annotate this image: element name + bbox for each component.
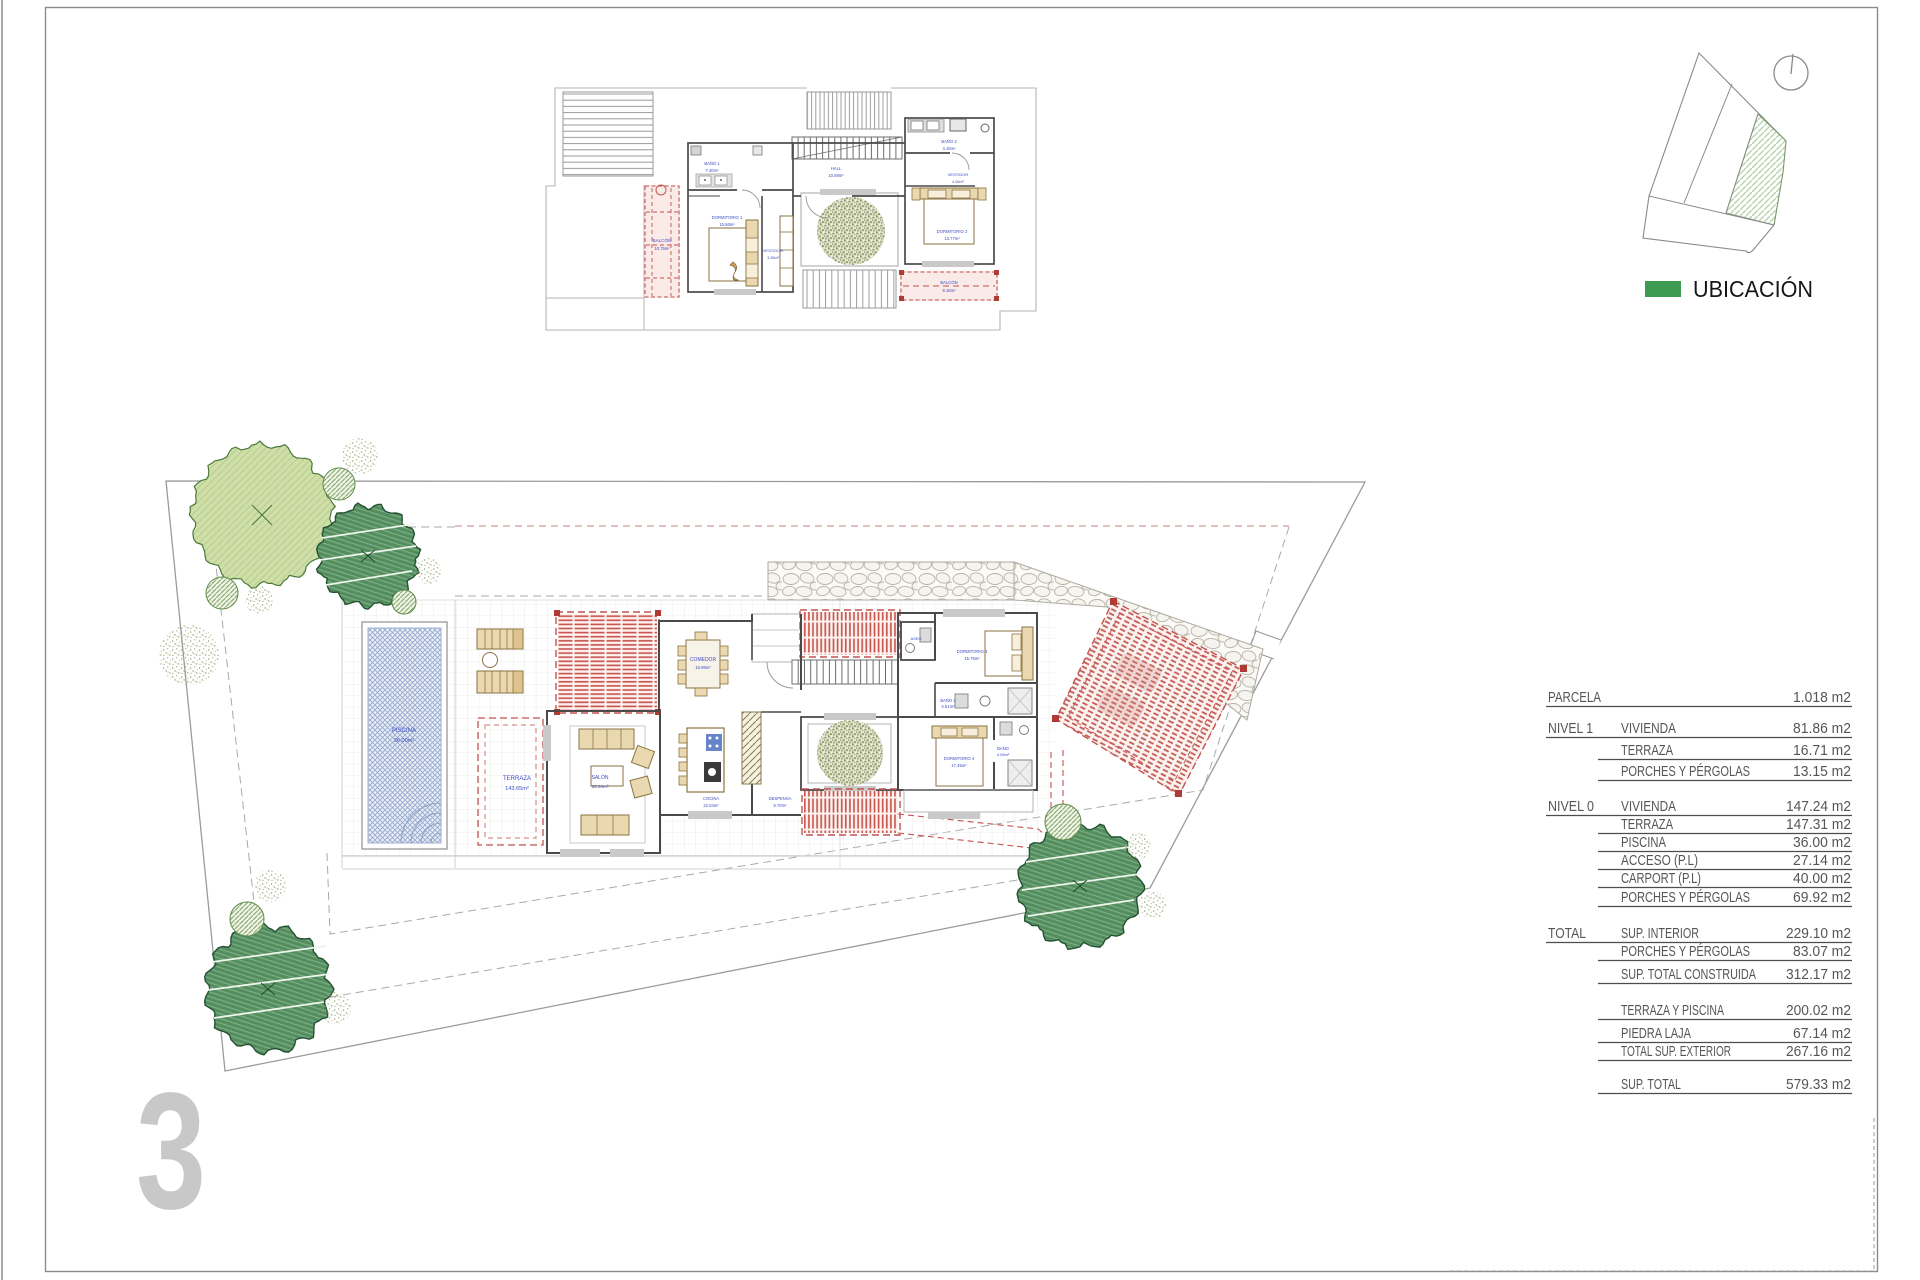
svg-text:SUP. TOTAL CONSTRUIDA: SUP. TOTAL CONSTRUIDA xyxy=(1621,967,1756,983)
svg-text:143.65m²: 143.65m² xyxy=(505,786,529,792)
svg-text:81.86 m2: 81.86 m2 xyxy=(1793,721,1851,737)
svg-text:1.018 m2: 1.018 m2 xyxy=(1793,690,1851,706)
svg-text:VESTIDOR: VESTIDOR xyxy=(948,172,969,177)
svg-text:COMEDOR: COMEDOR xyxy=(690,657,717,663)
svg-text:COCINA: COCINA xyxy=(703,796,719,801)
svg-text:PISCINA: PISCINA xyxy=(392,728,416,734)
svg-text:CARPORT (P.L): CARPORT (P.L) xyxy=(1621,871,1701,887)
svg-text:17.45m²: 17.45m² xyxy=(951,763,967,768)
svg-text:DORMITORIO 1: DORMITORIO 1 xyxy=(712,215,743,220)
svg-text:4.15m²: 4.15m² xyxy=(942,146,956,151)
svg-text:ACCESO (P.L): ACCESO (P.L) xyxy=(1621,853,1698,869)
svg-text:SALÓN: SALÓN xyxy=(592,774,609,781)
svg-text:BAÑO 2: BAÑO 2 xyxy=(941,139,957,144)
svg-text:PORCHES Y PÉRGOLAS: PORCHES Y PÉRGOLAS xyxy=(1621,943,1750,960)
svg-text:PORCHES Y PÉRGOLAS: PORCHES Y PÉRGOLAS xyxy=(1621,889,1750,906)
svg-text:TOTAL SUP. EXTERIOR: TOTAL SUP. EXTERIOR xyxy=(1621,1044,1731,1060)
svg-text:3: 3 xyxy=(136,1059,206,1244)
svg-text:33.34m²: 33.34m² xyxy=(592,784,609,789)
svg-text:BAÑO: BAÑO xyxy=(997,746,1010,751)
svg-text:16.95m²: 16.95m² xyxy=(695,665,711,670)
svg-text:VIVIENDA: VIVIENDA xyxy=(1621,799,1676,815)
svg-text:UBICACIÓN: UBICACIÓN xyxy=(1693,276,1813,302)
svg-text:10.75m²: 10.75m² xyxy=(654,246,670,251)
svg-text:36.00m²: 36.00m² xyxy=(394,738,415,744)
svg-text:4.51m²: 4.51m² xyxy=(941,704,955,709)
svg-text:DORMITORIO 2: DORMITORIO 2 xyxy=(937,229,968,234)
svg-text:TOTAL: TOTAL xyxy=(1548,926,1586,942)
svg-text:579.33 m2: 579.33 m2 xyxy=(1786,1077,1851,1093)
svg-text:10.59m²: 10.59m² xyxy=(828,173,844,178)
svg-text:BALCÓN: BALCÓN xyxy=(653,237,672,243)
svg-text:147.24 m2: 147.24 m2 xyxy=(1786,799,1851,815)
svg-text:9.16m²: 9.16m² xyxy=(942,288,956,293)
svg-text:16.71 m2: 16.71 m2 xyxy=(1793,743,1851,759)
svg-text:22.04m²: 22.04m² xyxy=(703,803,719,808)
svg-text:DESPENSA: DESPENSA xyxy=(769,796,792,801)
svg-text:69.92 m2: 69.92 m2 xyxy=(1793,890,1851,906)
svg-text:PIEDRA LAJA: PIEDRA LAJA xyxy=(1621,1026,1691,1042)
svg-text:36.00 m2: 36.00 m2 xyxy=(1793,835,1851,851)
svg-text:BAÑO 1: BAÑO 1 xyxy=(704,161,720,166)
svg-text:13.15 m2: 13.15 m2 xyxy=(1793,764,1851,780)
svg-text:13.77m²: 13.77m² xyxy=(944,236,960,241)
svg-text:NIVEL 1: NIVEL 1 xyxy=(1548,721,1593,737)
svg-text:ASEO: ASEO xyxy=(910,636,921,641)
svg-text:TERRAZA: TERRAZA xyxy=(503,776,531,782)
svg-text:229.10 m2: 229.10 m2 xyxy=(1786,926,1851,942)
svg-text:BALCÓN: BALCÓN xyxy=(940,280,957,285)
svg-text:DORMITORIO 3: DORMITORIO 3 xyxy=(957,649,988,654)
svg-text:DORMITORIO 4: DORMITORIO 4 xyxy=(944,756,975,761)
svg-text:TERRAZA: TERRAZA xyxy=(1621,817,1673,833)
svg-text:15.75m²: 15.75m² xyxy=(964,656,980,661)
svg-text:PARCELA: PARCELA xyxy=(1548,690,1601,706)
svg-text:7.40m²: 7.40m² xyxy=(705,168,719,173)
svg-text:4.05m²: 4.05m² xyxy=(997,752,1010,757)
svg-text:3.35m²: 3.35m² xyxy=(767,256,780,260)
svg-text:83.07 m2: 83.07 m2 xyxy=(1793,944,1851,960)
svg-text:SUP. INTERIOR: SUP. INTERIOR xyxy=(1621,926,1699,942)
svg-text:PORCHES Y PÉRGOLAS: PORCHES Y PÉRGOLAS xyxy=(1621,763,1750,780)
svg-text:TERRAZA Y PISCINA: TERRAZA Y PISCINA xyxy=(1621,1003,1724,1019)
svg-text:VESTIDOR: VESTIDOR xyxy=(763,248,784,253)
svg-text:15.56m²: 15.56m² xyxy=(719,222,735,227)
svg-text:27.14 m2: 27.14 m2 xyxy=(1793,853,1851,869)
svg-text:267.16 m2: 267.16 m2 xyxy=(1786,1044,1851,1060)
svg-text:5.70m²: 5.70m² xyxy=(773,803,787,808)
svg-text:VIVIENDA: VIVIENDA xyxy=(1621,721,1676,737)
svg-text:312.17 m2: 312.17 m2 xyxy=(1786,967,1851,983)
svg-text:200.02 m2: 200.02 m2 xyxy=(1786,1003,1851,1019)
svg-text:PISCINA: PISCINA xyxy=(1621,835,1666,851)
svg-text:67.14 m2: 67.14 m2 xyxy=(1793,1026,1851,1042)
svg-text:TERRAZA: TERRAZA xyxy=(1621,743,1673,759)
svg-text:BAÑO 3: BAÑO 3 xyxy=(940,698,956,703)
svg-text:SUP. TOTAL: SUP. TOTAL xyxy=(1621,1077,1681,1093)
svg-text:HALL: HALL xyxy=(831,166,842,171)
svg-text:40.00 m2: 40.00 m2 xyxy=(1793,871,1851,887)
svg-text:NIVEL 0: NIVEL 0 xyxy=(1548,799,1594,815)
svg-text:147.31 m2: 147.31 m2 xyxy=(1786,817,1851,833)
svg-text:4.06m²: 4.06m² xyxy=(952,180,965,184)
